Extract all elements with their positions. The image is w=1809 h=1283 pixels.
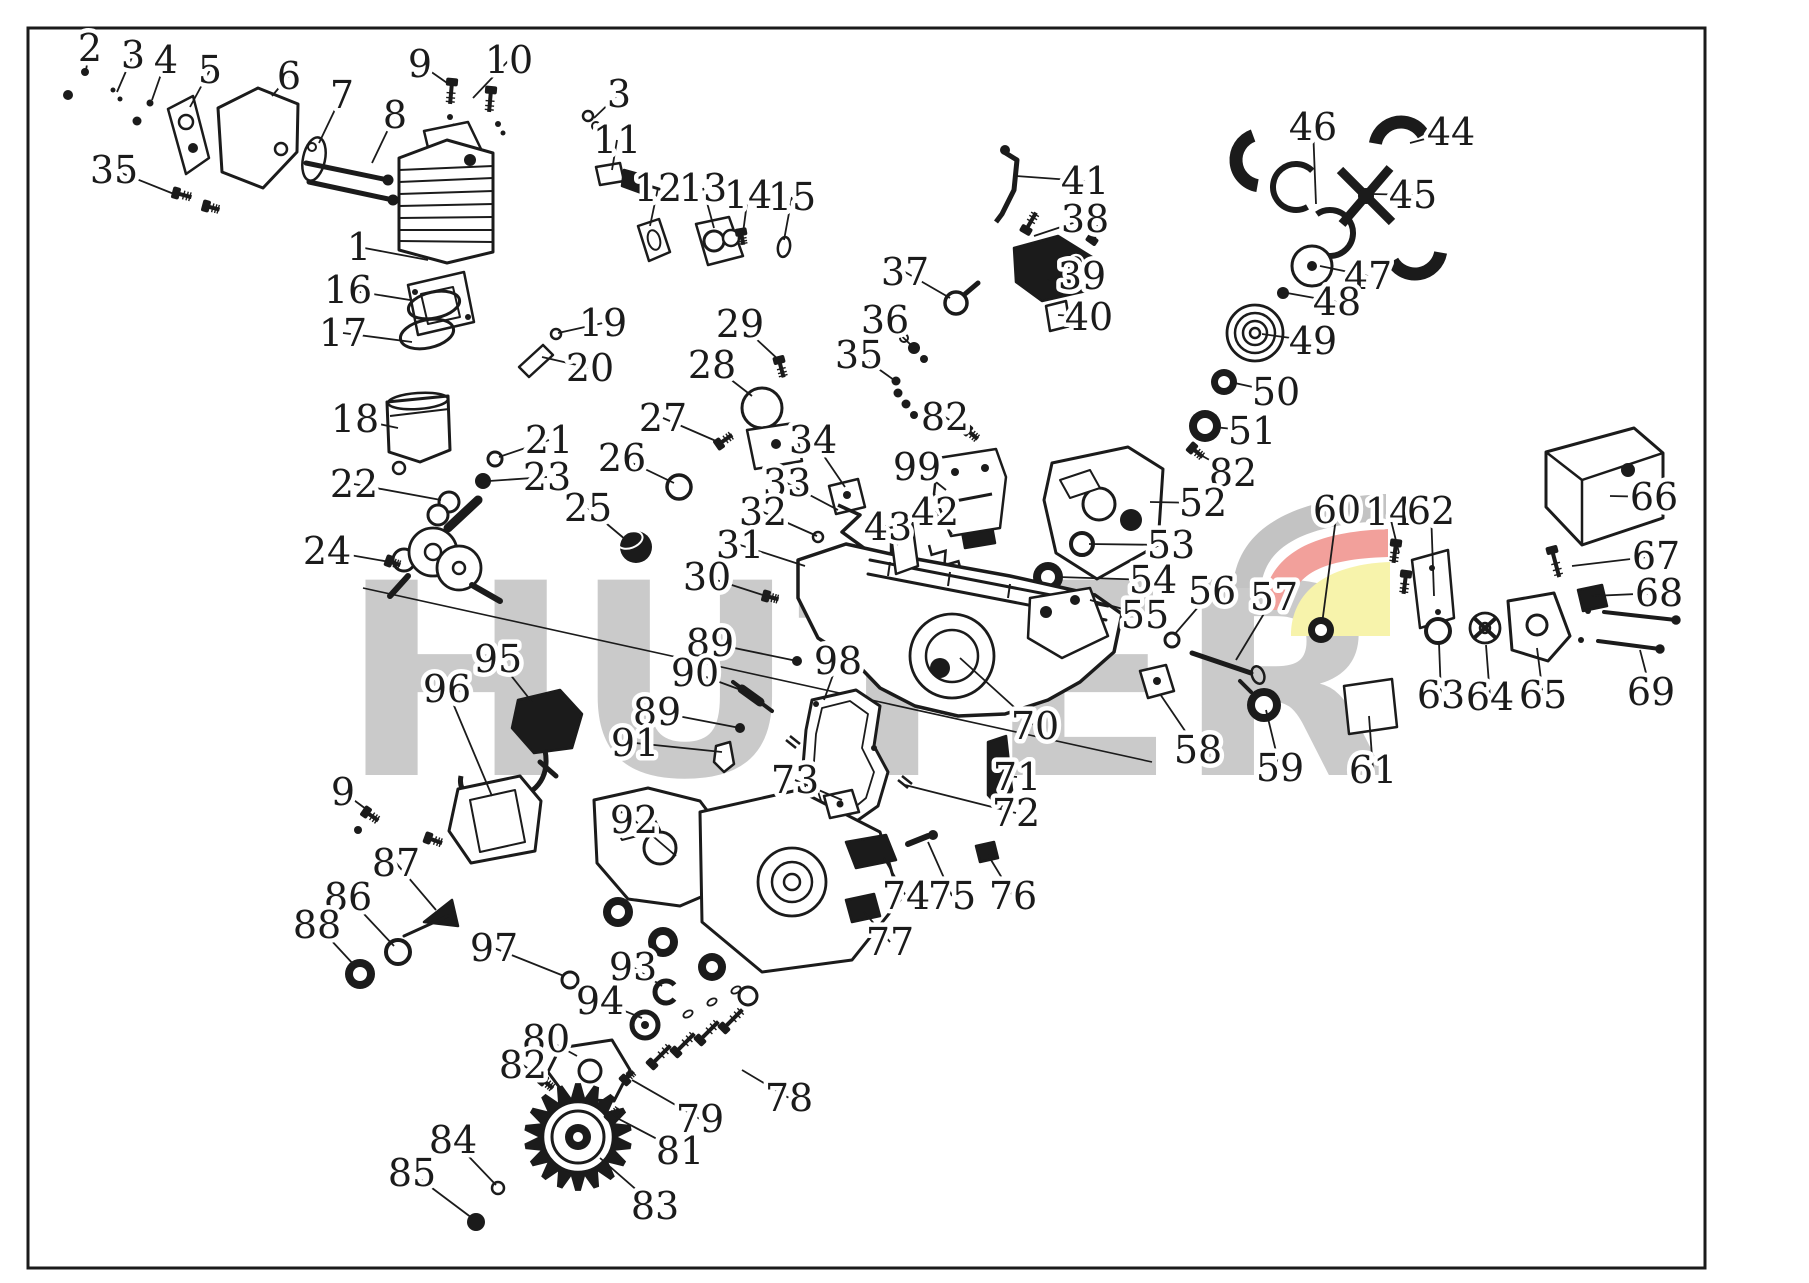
callout-number: 11 [593, 118, 641, 162]
callout-76: 76 [988, 855, 1037, 918]
callout-number: 18 [331, 397, 379, 441]
callout-64: 64 [1466, 645, 1514, 719]
callout-number: 60 [1313, 488, 1361, 532]
callout-number: 37 [881, 250, 929, 294]
callout-number: 26 [598, 436, 646, 480]
callout-7: 7 [319, 73, 354, 143]
part-drawings [63, 68, 1681, 1231]
callout-number: 63 [1417, 673, 1465, 717]
callout-number: 64 [1466, 675, 1514, 719]
callout-number: 40 [1065, 295, 1113, 339]
callout-2: 2 [78, 26, 102, 70]
callout-number: 88 [293, 903, 341, 947]
callout-number: 7 [330, 73, 354, 117]
callout-9: 9 [408, 42, 450, 86]
callout-number: 44 [1427, 110, 1475, 154]
callout-number: 82 [499, 1043, 547, 1087]
callout-number: 99 [893, 445, 941, 489]
callout-number: 76 [989, 874, 1037, 918]
callout-63: 63 [1417, 643, 1465, 717]
callout-number: 87 [372, 841, 420, 885]
callout-3: 3 [594, 72, 631, 118]
callout-number: 1 [347, 225, 371, 269]
callout-number: 72 [992, 791, 1040, 835]
callout-number: 15 [768, 175, 816, 219]
callout-number: 46 [1289, 105, 1337, 149]
callout-number: 98 [814, 639, 862, 683]
callout-number: 3 [607, 72, 631, 116]
callout-number: 16 [324, 268, 372, 312]
callout-number: 6 [277, 54, 301, 98]
callout-number: 5 [198, 48, 222, 92]
callout-number: 13 [679, 166, 727, 210]
callout-number: 45 [1389, 173, 1437, 217]
callout-68: 68 [1592, 571, 1683, 615]
callout-number: 43 [864, 505, 912, 549]
callout-number: 81 [656, 1129, 704, 1173]
callout-number: 12 [634, 166, 682, 210]
callout-97: 97 [470, 926, 564, 976]
callout-50: 50 [1230, 370, 1300, 414]
callout-42: 42 [911, 490, 959, 534]
callout-number: 65 [1519, 673, 1567, 717]
callout-99: 99 [893, 445, 946, 490]
callout-22: 22 [330, 462, 441, 506]
callout-number: 94 [576, 979, 624, 1023]
callout-12: 12 [634, 166, 682, 226]
callout-number: 39 [1058, 254, 1106, 298]
callout-40: 40 [1058, 295, 1113, 339]
callout-number: 14 [724, 173, 772, 217]
callout-82: 82 [499, 1043, 547, 1087]
callout-number: 55 [1121, 593, 1169, 637]
callout-number: 61 [1349, 748, 1397, 792]
callout-74: 74 [882, 858, 930, 918]
callout-number: 57 [1250, 575, 1298, 619]
callout-number: 8 [383, 93, 407, 137]
callout-10: 10 [473, 38, 533, 98]
callout-number: 51 [1228, 409, 1276, 453]
callout-number: 2 [78, 26, 102, 70]
callout-6: 6 [272, 54, 301, 98]
callout-number: 27 [639, 396, 687, 440]
callout-number: 90 [671, 651, 719, 695]
callout-number: 69 [1627, 670, 1675, 714]
callout-4: 4 [152, 38, 178, 100]
callout-number: 25 [564, 486, 612, 530]
callout-3: 3 [117, 33, 145, 92]
callout-26: 26 [598, 436, 674, 483]
callout-number: 38 [1061, 197, 1109, 241]
callout-number: 19 [579, 301, 627, 345]
callout-number: 30 [683, 555, 731, 599]
callout-number: 52 [1179, 481, 1227, 525]
callout-11: 11 [593, 118, 641, 170]
callout-number: 35 [90, 148, 138, 192]
callout-77: 77 [864, 912, 914, 964]
callout-number: 42 [911, 490, 959, 534]
callout-number: 74 [882, 874, 930, 918]
callout-38: 38 [1034, 197, 1109, 241]
callout-69: 69 [1627, 650, 1675, 714]
callout-number: 92 [610, 798, 658, 842]
callout-number: 10 [485, 38, 533, 82]
callout-number: 75 [928, 874, 976, 918]
callout-number: 28 [688, 343, 736, 387]
callout-48: 48 [1287, 280, 1361, 324]
callout-number: 91 [611, 721, 659, 765]
callout-15: 15 [768, 175, 816, 240]
callout-78: 78 [742, 1070, 813, 1120]
callout-87: 87 [372, 841, 436, 910]
callout-number: 24 [303, 529, 351, 573]
callout-number: 3 [121, 33, 145, 77]
callout-number: 9 [408, 42, 432, 86]
callout-number: 77 [866, 920, 914, 964]
callout-82: 82 [921, 395, 969, 439]
callout-number: 49 [1289, 319, 1337, 363]
callout-number: 50 [1252, 370, 1300, 414]
callout-number: 82 [921, 395, 969, 439]
callout-number: 17 [319, 311, 367, 355]
callout-number: 59 [1256, 746, 1304, 790]
callout-35: 35 [90, 148, 174, 194]
callout-number: 22 [330, 462, 378, 506]
callout-number: 56 [1188, 569, 1236, 613]
callout-75: 75 [928, 842, 976, 918]
callout-46: 46 [1289, 105, 1337, 204]
callout-number: 62 [1407, 489, 1455, 533]
callout-number: 85 [388, 1151, 436, 1195]
callout-number: 95 [474, 637, 522, 681]
callout-number: 35 [835, 333, 883, 377]
callout-28: 28 [688, 343, 752, 396]
callout-17: 17 [319, 311, 412, 355]
callout-number: 4 [154, 38, 178, 82]
callout-number: 78 [765, 1076, 813, 1120]
callout-number: 73 [771, 758, 819, 802]
callout-number: 68 [1635, 571, 1683, 615]
callout-5: 5 [190, 48, 222, 107]
callout-number: 70 [1011, 704, 1059, 748]
callout-number: 96 [423, 667, 471, 711]
callout-number: 48 [1313, 280, 1361, 324]
callout-number: 20 [566, 346, 614, 390]
callout-number: 9 [331, 770, 355, 814]
callout-27: 27 [639, 396, 716, 441]
callout-number: 83 [631, 1184, 679, 1228]
callout-8: 8 [372, 93, 407, 163]
callout-number: 97 [470, 926, 518, 970]
callout-37: 37 [881, 250, 950, 298]
exploded-parts-diagram-page: HUTER23456789103111213141535116171819202… [0, 0, 1809, 1283]
callout-number: 66 [1630, 475, 1678, 519]
callout-51: 51 [1214, 409, 1276, 453]
callout-19: 19 [558, 301, 627, 345]
chainsaw-exploded-parts-diagram: HUTER23456789103111213141535116171819202… [0, 0, 1809, 1283]
callout-43: 43 [864, 505, 912, 549]
callout-84: 84 [429, 1118, 496, 1185]
callout-20: 20 [542, 346, 614, 390]
callout-number: 58 [1174, 728, 1222, 772]
callout-number: 34 [789, 418, 837, 462]
callout-number: 29 [716, 302, 764, 346]
callout-16: 16 [324, 268, 410, 312]
